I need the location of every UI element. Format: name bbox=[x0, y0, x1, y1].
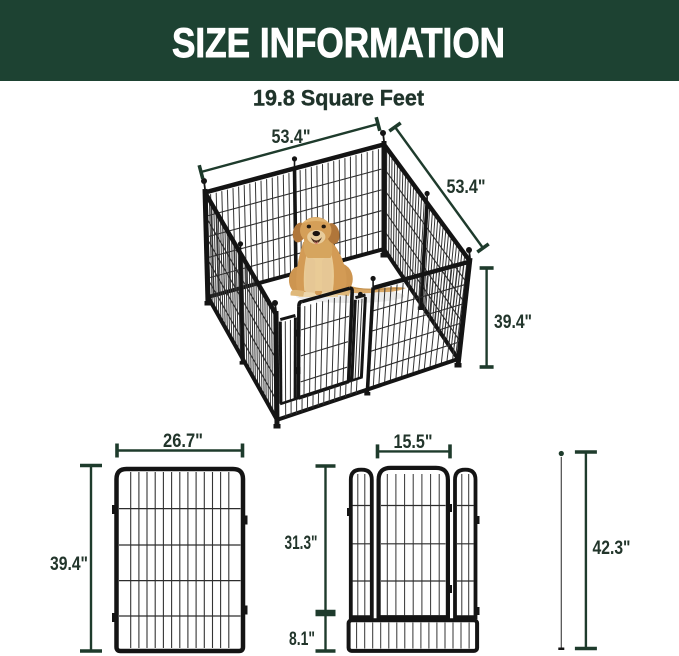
svg-text:19.8 Square Feet: 19.8 Square Feet bbox=[253, 86, 425, 111]
svg-text:39.4": 39.4" bbox=[494, 311, 532, 333]
svg-text:8.1": 8.1" bbox=[289, 628, 315, 650]
svg-text:53.4": 53.4" bbox=[447, 176, 486, 198]
svg-text:42.3": 42.3" bbox=[593, 537, 631, 559]
svg-text:26.7": 26.7" bbox=[163, 430, 203, 452]
svg-text:53.4": 53.4" bbox=[272, 126, 311, 148]
svg-text:39.4": 39.4" bbox=[50, 553, 88, 575]
svg-text:SIZE INFORMATION: SIZE INFORMATION bbox=[172, 19, 505, 66]
svg-text:15.5": 15.5" bbox=[394, 431, 433, 453]
svg-text:31.3": 31.3" bbox=[285, 532, 318, 554]
